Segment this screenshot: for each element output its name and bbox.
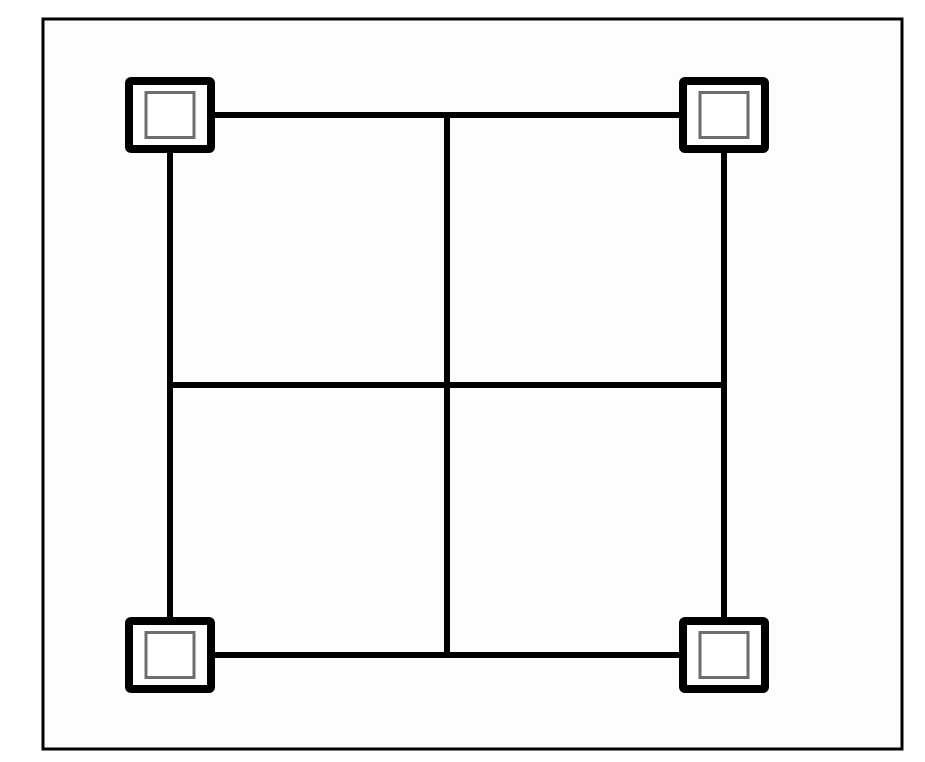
node-top-right[interactable] [683, 81, 765, 149]
node-inner-square [146, 633, 194, 678]
node-inner-square [700, 93, 748, 138]
node-inner-square [700, 633, 748, 678]
node-inner-square [146, 93, 194, 138]
node-top-left[interactable] [129, 81, 211, 149]
node-bottom-left[interactable] [129, 621, 211, 689]
node-bottom-right[interactable] [683, 621, 765, 689]
diagram-svg [0, 0, 925, 762]
window [0, 0, 925, 762]
